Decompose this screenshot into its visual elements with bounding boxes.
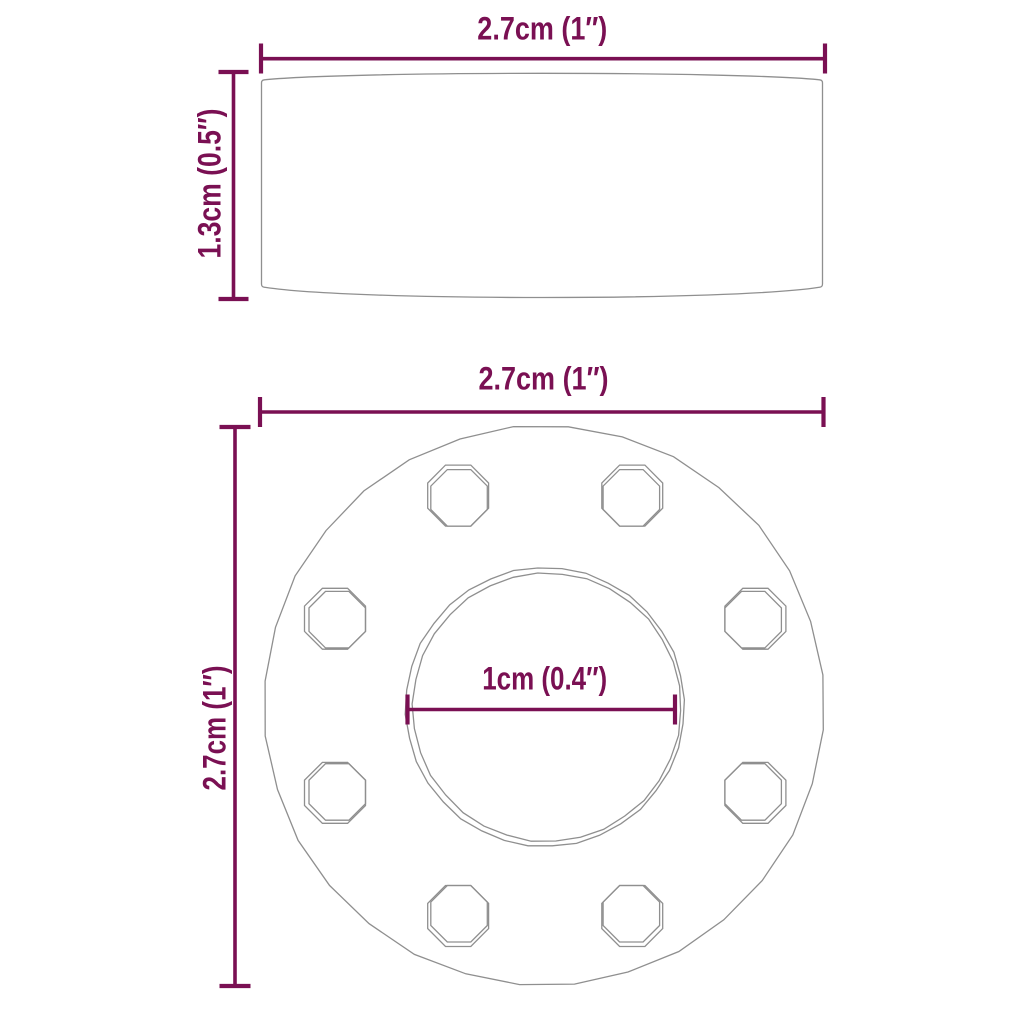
svg-text:2.7cm (1″): 2.7cm (1″) xyxy=(479,361,609,397)
svg-text:1cm (0.4″): 1cm (0.4″) xyxy=(482,661,607,697)
svg-text:2.7cm (1″): 2.7cm (1″) xyxy=(477,11,607,47)
svg-text:2.7cm (1″): 2.7cm (1″) xyxy=(197,666,233,791)
svg-text:1.3cm (0.5″): 1.3cm (0.5″) xyxy=(192,109,228,259)
